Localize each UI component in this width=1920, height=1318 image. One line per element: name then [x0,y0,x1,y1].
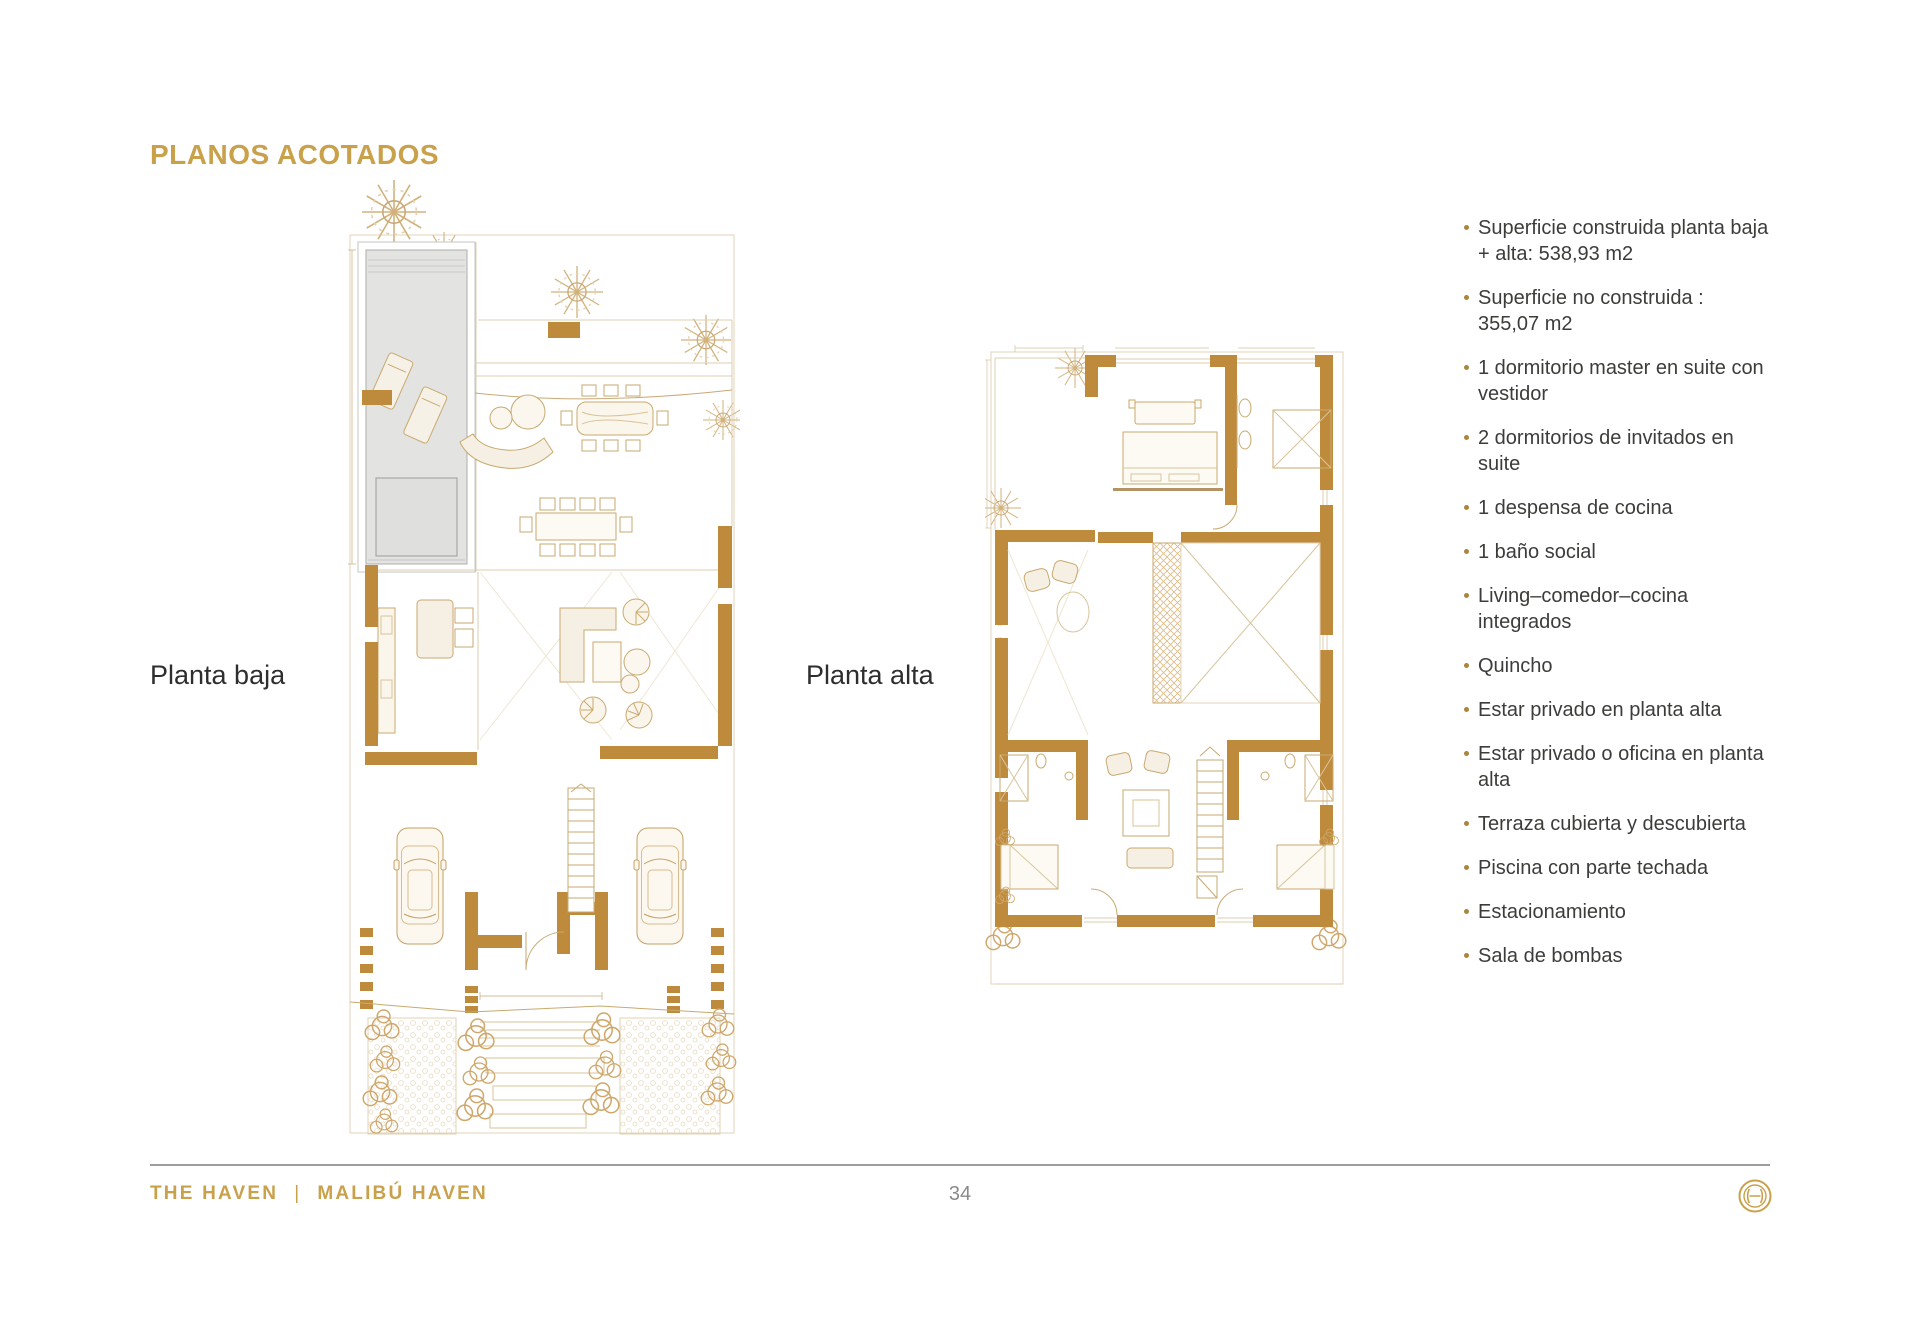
feature-item: 2 dormitorios de invitados en suite [1462,425,1770,477]
feature-item: Terraza cubierta y descubierta [1462,811,1770,837]
page-number: 34 [0,1183,1920,1206]
feature-item: Superficie no construida : 355,07 m2 [1462,285,1770,337]
pool [358,242,475,572]
master-bedroom [1113,400,1223,491]
feature-item: 1 baño social [1462,539,1770,565]
driveway [350,1002,734,1134]
plan-label-alta: Planta alta [806,660,934,691]
stairs [1197,747,1223,898]
upper-sitting-area [1105,750,1173,868]
feature-item: Superficie construida planta baja + alta… [1462,215,1770,267]
feature-item: Quincho [1462,653,1770,679]
feature-item: Living–comedor–cocina integrados [1462,583,1770,635]
estar-privado [1008,550,1089,735]
void-quincho [1181,543,1320,703]
footer-divider [150,1164,1770,1166]
plan-label-baja: Planta baja [150,660,285,691]
garage-cars [394,828,686,944]
feature-item: Sala de bombas [1462,943,1770,969]
feature-item: Estar privado o oficina en planta alta [1462,741,1770,793]
feature-item: 1 dormitorio master en suite con vestido… [1462,355,1770,407]
stairs [568,784,594,912]
guest-bedroom-left [996,754,1117,915]
stair-hatch [1153,543,1181,703]
feature-item: 1 despensa de cocina [1462,495,1770,521]
planta-alta-drawing [985,340,1350,990]
page-title: PLANOS ACOTADOS [150,139,439,171]
features-list: Superficie construida planta baja + alta… [1462,215,1770,987]
feature-item: Estacionamiento [1462,899,1770,925]
feature-item: Piscina con parte techada [1462,855,1770,881]
feature-item: Estar privado en planta alta [1462,697,1770,723]
dining-area [520,498,632,556]
kitchen [378,600,473,733]
haven-monogram-icon [1737,1178,1773,1214]
planta-baja-drawing [290,180,740,1140]
